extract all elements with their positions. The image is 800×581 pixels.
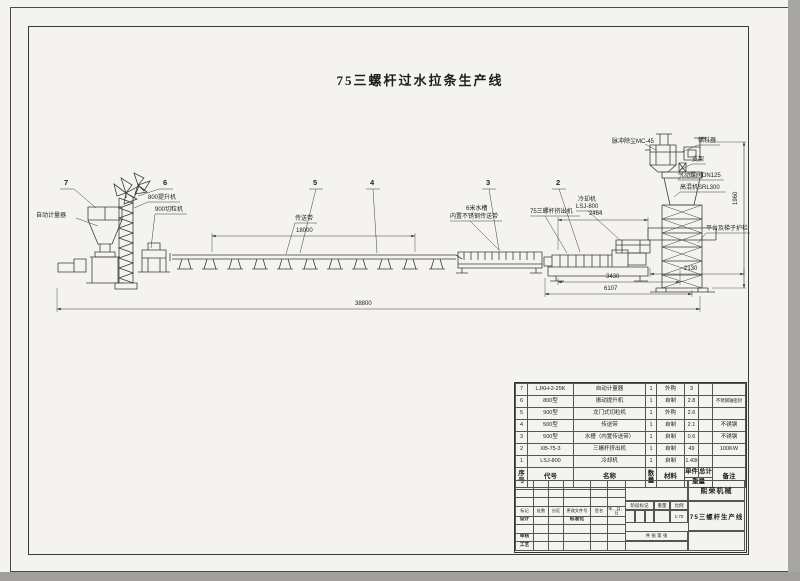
- weight-label: 重量: [654, 501, 670, 510]
- parts-and-title-block: 7LJKH-2-25K自动计量器1外购3 6800型振动提升机1自制2.8不锈钢…: [514, 382, 747, 553]
- balloon-5: 5: [313, 178, 317, 187]
- dim-extruder-length: 2464: [589, 211, 602, 217]
- balloon-4: 4: [370, 178, 374, 187]
- dimension-lines: [57, 142, 746, 312]
- product-title: 75三螺杆生产线: [688, 501, 745, 531]
- table-row: 4500型传送带1自制2.1不锈钢: [516, 420, 746, 432]
- scale-label: 比例: [670, 501, 688, 510]
- balloon-7: 7: [64, 178, 68, 187]
- label-pelletizer: 900切粒机: [155, 207, 183, 214]
- company-name: 熙荣机械: [688, 480, 745, 501]
- stage-label: 阶段标记: [625, 501, 654, 510]
- title-block-company-area: 熙荣机械 75三螺杆生产线: [688, 480, 745, 551]
- dim-tower-height: 1960: [733, 192, 739, 205]
- table-row: 3500型水槽（内置传送带）1自制0.6不锈钢: [516, 432, 746, 444]
- label-mixer: 高混机SRL300: [680, 185, 720, 192]
- table-row: 5900型龙门式切粒机1外购2.6: [516, 408, 746, 420]
- table-row: 2XB-75-3三螺杆挤出机1自制49100KW: [516, 444, 746, 456]
- balloon-3: 3: [486, 178, 490, 187]
- balloon-6: 6: [163, 178, 167, 187]
- title-block: 标记 处数 分区 更改文件号 签名 年、月、日 设计标准化 审核 工艺 阶段标记: [515, 480, 745, 551]
- dim-base-b: 6107: [604, 286, 617, 292]
- dim-tower-width: 2130: [684, 266, 697, 272]
- balloon-2: 2: [556, 178, 560, 187]
- label-elevator: 800提升机: [148, 195, 176, 202]
- drawing-sheet: 75三螺杆过水拉条生产线: [0, 0, 800, 581]
- label-valve: 气动蝶阀DN125: [678, 173, 721, 180]
- revision-header-row: 标记 处数 分区 更改文件号 签名 年、月、日: [516, 506, 626, 516]
- parts-header-row: 序号 代号 名称 数量 材料 单件 总计 备注: [516, 468, 746, 478]
- label-cooler-line1: 冷却机: [578, 197, 596, 204]
- label-silo: 储料器: [698, 138, 716, 145]
- label-support-frame: 支架: [692, 157, 704, 164]
- table-row: 1LSJ-800冷却机1自制1.43t: [516, 456, 746, 468]
- dim-overall-length: 38800: [355, 301, 372, 307]
- label-tank-line1: 6米水槽: [466, 206, 487, 213]
- label-conveyor: 传送带: [295, 216, 313, 223]
- title-block-revision-grid: 标记 处数 分区 更改文件号 签名 年、月、日 设计标准化 审核 工艺: [515, 480, 625, 551]
- label-cooler-line2: LSJ-800: [576, 204, 598, 211]
- label-auto-meter: 自动计量器: [36, 213, 66, 220]
- label-tank-line2: 内置不锈钢传送带: [450, 214, 498, 221]
- parts-table: 7LJKH-2-25K自动计量器1外购3 6800型振动提升机1自制2.8不锈钢…: [515, 383, 746, 488]
- table-row: 6800型振动提升机1自制2.8不锈钢轴密封: [516, 396, 746, 408]
- dim-conveyor-length: 18000: [296, 228, 313, 234]
- title-block-scale-area: 阶段标记 重量 比例 1:70 共 张 第 张: [625, 480, 688, 551]
- scale-value: 1:70: [670, 510, 688, 523]
- label-platform: 平台及梯子护栏: [706, 226, 748, 233]
- dim-base-a: 3430: [606, 274, 619, 280]
- label-dust-collector: 脉冲除尘MC-45: [612, 139, 654, 146]
- table-row: 7LJKH-2-25K自动计量器1外购3: [516, 384, 746, 396]
- label-extruder: 75三螺杆挤出机: [530, 209, 573, 216]
- sheet-count: 共 张 第 张: [625, 531, 688, 541]
